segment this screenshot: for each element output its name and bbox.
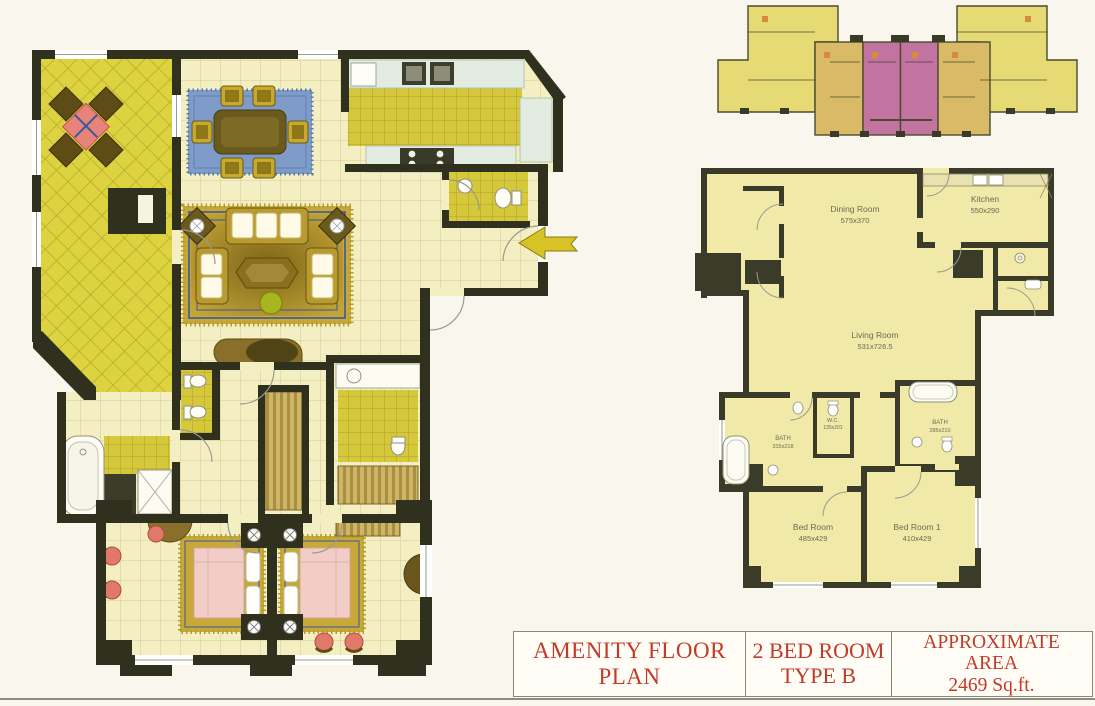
- schematic-floor: [703, 170, 1052, 588]
- fridge: [351, 63, 376, 86]
- shower: [138, 470, 172, 514]
- title-type-cell: 2 BED ROOM TYPE B: [745, 632, 891, 696]
- floor-plan-page: Dining Room 575x370 Kitchen 550x290 Livi…: [0, 0, 1095, 706]
- wc-label: W.C.: [827, 418, 839, 424]
- wardrobe: [338, 466, 418, 504]
- kitchen-dims: 550x290: [971, 206, 1000, 215]
- dining-room-label: Dining Room: [830, 204, 879, 214]
- title-plan-cell: AMENITY FLOOR PLAN: [514, 632, 745, 696]
- wc-dims: 135x201: [823, 425, 842, 431]
- planter-block: [108, 188, 166, 234]
- guest-wc: [448, 172, 528, 222]
- area-line2: AREA: [965, 653, 1018, 674]
- main-floor-plan: [0, 0, 590, 690]
- wc-room: [181, 370, 212, 433]
- bottom-rule: [0, 698, 1095, 700]
- bath-b-label: BATH: [932, 420, 948, 426]
- bedroom1-label: Bed Room 1: [893, 522, 941, 532]
- ottoman: [260, 292, 282, 314]
- terrace: [36, 52, 176, 392]
- bedroom1-dims: 410x429: [903, 534, 932, 543]
- kitchen: [348, 60, 552, 172]
- living-room-dims: 531x726.5: [857, 342, 892, 351]
- area-line1: APPROXIMATE: [923, 632, 1060, 653]
- armchair-right: [306, 248, 338, 304]
- unit-type-line2: TYPE B: [781, 664, 856, 689]
- unit-tan-left: [815, 42, 863, 135]
- unit-tan-right: [938, 42, 990, 135]
- highlighted-unit: [901, 42, 939, 135]
- kitchen-label: Kitchen: [971, 194, 1000, 204]
- dining-area: [188, 86, 312, 178]
- sofa: [226, 208, 308, 244]
- unit-type-line1: 2 BED ROOM: [752, 639, 884, 664]
- plan-title: AMENITY FLOOR PLAN: [514, 638, 745, 690]
- area-line3: 2469 Sq.ft.: [948, 675, 1034, 696]
- bedroom-dims: 485x429: [799, 534, 828, 543]
- title-area-cell: APPROXIMATE AREA 2469 Sq.ft.: [891, 632, 1091, 696]
- dining-room-dims: 575x370: [841, 216, 870, 225]
- bath-a-label: BATH: [775, 436, 791, 442]
- bath-a-dims: 315x218: [772, 444, 793, 450]
- bath-b-dims: 285x210: [929, 428, 950, 434]
- building-key-plan: [700, 2, 1095, 147]
- bath-two: [336, 364, 420, 504]
- window-bench: [336, 522, 400, 536]
- title-block: AMENITY FLOOR PLAN 2 BED ROOM TYPE B APP…: [513, 631, 1093, 697]
- schematic-floor-plan: Dining Room 575x370 Kitchen 550x290 Livi…: [695, 158, 1070, 628]
- highlighted-unit: [863, 42, 901, 135]
- armchair-left: [196, 248, 228, 304]
- living-room-label: Living Room: [851, 330, 898, 340]
- bedroom-label: Bed Room: [793, 522, 833, 532]
- central-closet: [265, 392, 302, 510]
- console-desk: [214, 339, 302, 366]
